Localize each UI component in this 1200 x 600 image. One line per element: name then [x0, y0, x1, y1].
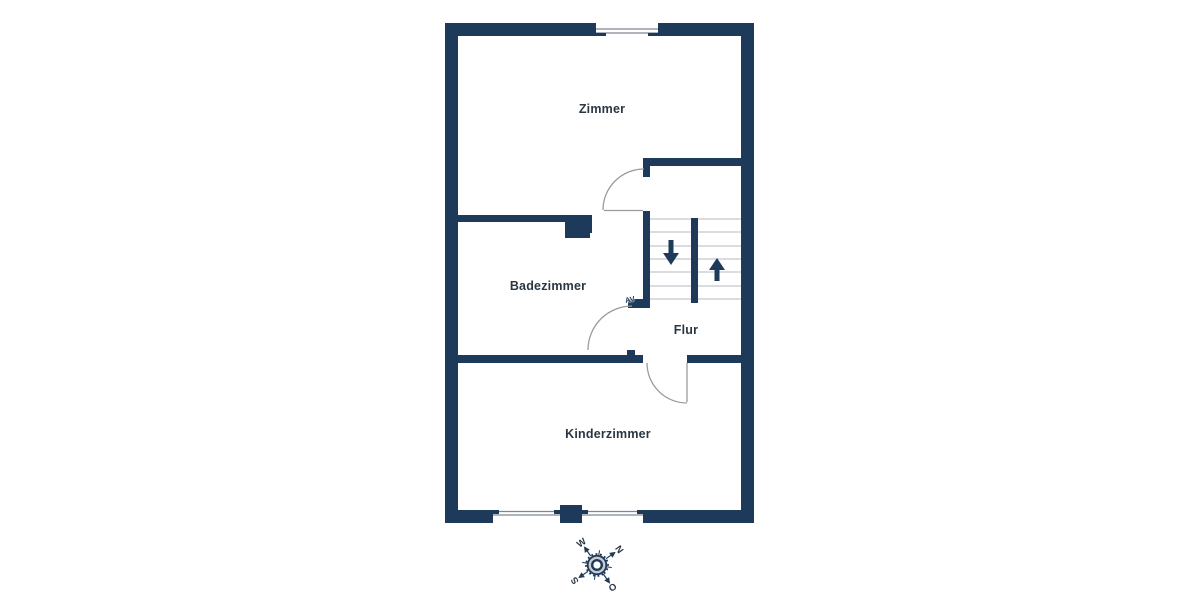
window-top: [596, 29, 658, 36]
door-swing-zimmer: [603, 169, 644, 211]
wall-zimmer-bad: [458, 215, 582, 222]
wall-zimmer-stairs: [643, 158, 741, 166]
door-swing-kinderzimmer: [647, 363, 687, 403]
staircase: [650, 218, 741, 303]
bad-pillar: [565, 222, 590, 238]
stairs-down-arrow-icon: [663, 240, 679, 265]
wall-top-right: [658, 23, 754, 36]
interior-walls: [458, 158, 741, 363]
wall-right: [741, 23, 754, 523]
window-bottom-right: [582, 510, 643, 515]
stair-divider-wall: [691, 218, 698, 303]
room-label-kinderzimmer: Kinderzimmer: [565, 427, 651, 441]
bad-door-hinge-block: [627, 350, 635, 355]
room-label-badezimmer: Badezimmer: [510, 279, 586, 293]
wall-left: [445, 23, 458, 523]
wall-bottom-right: [643, 510, 754, 523]
stairs-up-arrow-icon: [709, 258, 725, 281]
room-label-flur: Flur: [674, 323, 698, 337]
wall-stairs-left: [643, 211, 650, 303]
door-swing-badezimmer: [588, 306, 632, 350]
wall-bad-kinderzimmer: [458, 355, 643, 363]
window-bottom-left: [493, 510, 560, 515]
wall-bottom-window-pier: [560, 505, 582, 523]
wall-flur-kinderzimmer: [687, 355, 741, 363]
room-label-zimmer: Zimmer: [579, 102, 625, 116]
wall-top-left: [445, 23, 596, 36]
compass-rose: N O S W: [552, 520, 641, 600]
wall-zimmer-stairs-endcap: [643, 158, 650, 177]
floorplan-canvas: N O S W Zimmer Badezimmer Flur Kinderzim…: [0, 0, 1200, 600]
exterior-walls: [445, 23, 754, 523]
wall-bottom-left: [445, 510, 493, 523]
floorplan-drawing: N O S W: [0, 0, 1200, 600]
